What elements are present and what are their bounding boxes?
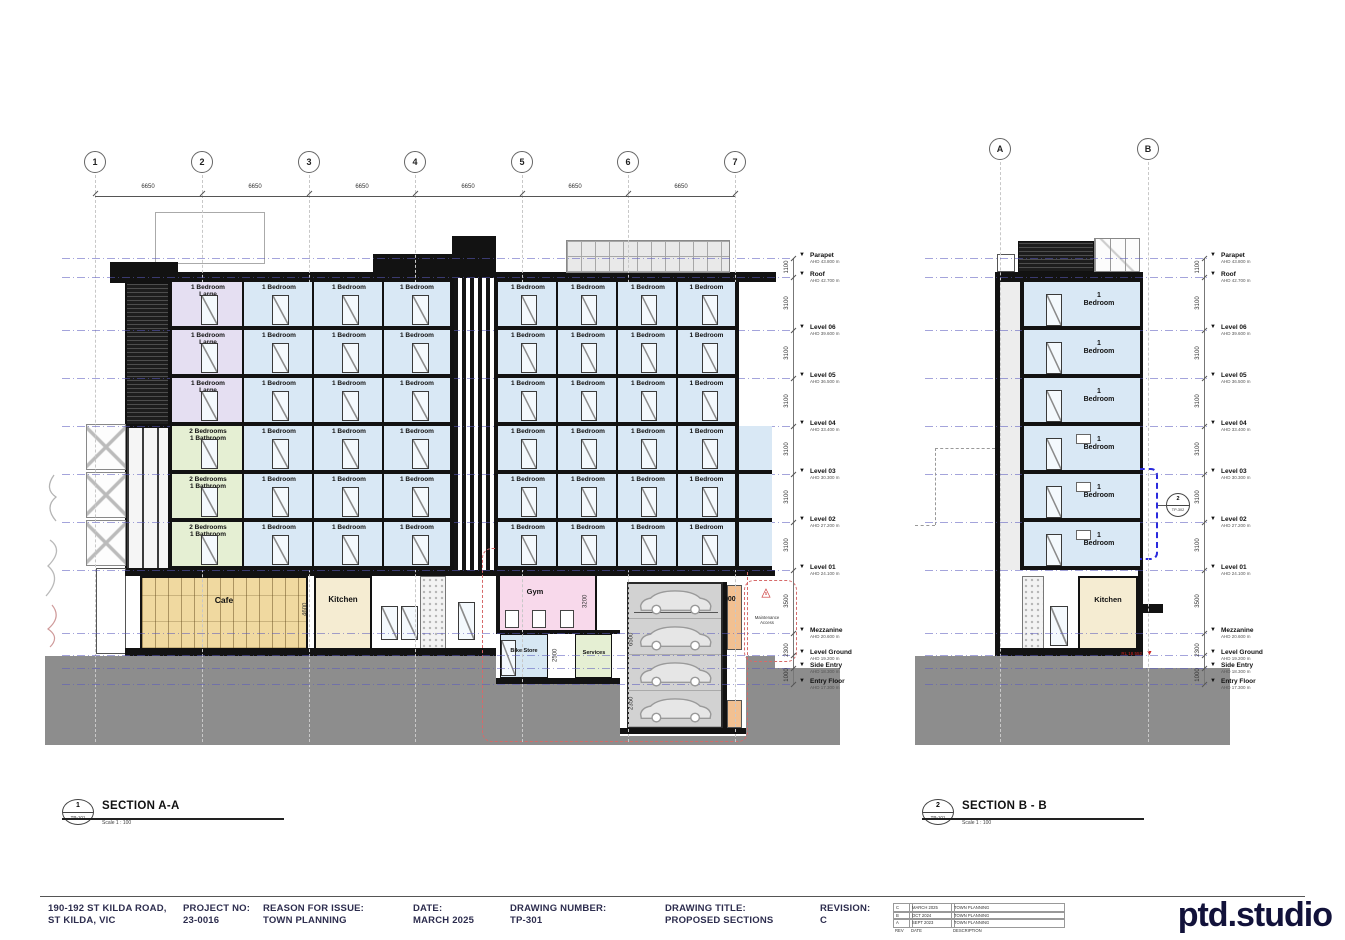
level-marker-icon: ▼ bbox=[1210, 252, 1216, 258]
room-door bbox=[702, 535, 718, 565]
section-a-callout-circle: 1 TP-101 bbox=[62, 799, 94, 825]
grid-dim-1: 6650 bbox=[215, 184, 295, 190]
level-ahd: AHD 42.700 m bbox=[810, 278, 880, 283]
room-label: 1 Bedroom bbox=[384, 428, 450, 435]
cafe-label: Cafe bbox=[140, 596, 308, 605]
room-cell: 1 Bedroom bbox=[676, 282, 739, 330]
level-ahd: AHD 19.200 m bbox=[1221, 656, 1291, 661]
room-cell: 1 Bedroom Large bbox=[170, 330, 244, 378]
level-marker-icon: ▼ bbox=[1210, 468, 1216, 474]
room-label: 1 Bedroom bbox=[498, 428, 558, 435]
room-door bbox=[272, 391, 289, 421]
level-name: Entry Floor bbox=[1221, 678, 1291, 685]
bike-store-label: Bike Store bbox=[500, 648, 548, 654]
room-cell: 1 Bedroom bbox=[312, 474, 384, 522]
grid-dim-2: 6650 bbox=[322, 184, 402, 190]
drawing-number-field: DRAWING NUMBER: TP-301 bbox=[510, 903, 606, 927]
vertical-dim: 3100 bbox=[784, 333, 790, 373]
room-label: 1 Bedroom bbox=[244, 524, 314, 531]
room-cell: 1 Bedroom bbox=[496, 282, 558, 330]
room-label: 1 Bedroom bbox=[244, 476, 314, 483]
room-cell: 1 Bedroom bbox=[616, 378, 678, 426]
room-label: 1 Bedroom bbox=[384, 524, 450, 531]
room-label: 1 Bedroom bbox=[498, 476, 558, 483]
room-cell: 1 Bedroom bbox=[496, 522, 558, 570]
room-door bbox=[641, 343, 657, 373]
room-cell: 1 Bedroom bbox=[242, 474, 314, 522]
level-marker-icon: ▼ bbox=[799, 662, 805, 668]
section-b-callout-number: 2 bbox=[923, 800, 953, 813]
level-marker: Level 03AHD 30.300 m bbox=[810, 468, 880, 480]
kitchen-label-b: Kitchen bbox=[1078, 596, 1138, 604]
car-icon bbox=[632, 658, 718, 688]
ground-earth-b bbox=[915, 656, 1230, 745]
room-door bbox=[412, 343, 429, 373]
room-door bbox=[201, 391, 218, 421]
balcony-panel bbox=[86, 472, 126, 518]
revision-label: REVISION: bbox=[820, 903, 870, 915]
level-line bbox=[62, 277, 795, 278]
section-a-title: SECTION A-A bbox=[102, 800, 180, 813]
level-line bbox=[925, 655, 1207, 656]
stacker-platform bbox=[629, 726, 721, 727]
level-marker: Level 04AHD 33.400 m bbox=[1221, 420, 1291, 432]
room-door bbox=[641, 535, 657, 565]
level-dim-line bbox=[1204, 258, 1205, 684]
hand-scribble bbox=[36, 470, 70, 650]
vertical-dim: 3100 bbox=[784, 525, 790, 565]
room-door bbox=[412, 439, 429, 469]
room-cell: 1 Bedroom bbox=[616, 330, 678, 378]
room-cell: 1 Bedroom bbox=[616, 522, 678, 570]
level-ahd: AHD 27.200 m bbox=[810, 523, 880, 528]
level-marker: Level 01AHD 24.100 m bbox=[810, 564, 880, 576]
vertical-dim: 3500 bbox=[784, 581, 790, 621]
level-ahd: AHD 24.100 m bbox=[810, 571, 880, 576]
grid-dim-3: 6650 bbox=[428, 184, 508, 190]
reason-field: REASON FOR ISSUE: TOWN PLANNING bbox=[263, 903, 364, 927]
room-door bbox=[641, 487, 657, 517]
room-label: 1 Bedroom bbox=[244, 284, 314, 291]
room-cell: 2 Bedrooms 1 Bathroom bbox=[170, 474, 244, 522]
room-label: 1 Bedroom bbox=[558, 380, 618, 387]
room-label: 1 Bedroom bbox=[314, 524, 384, 531]
room-cell: 1 Bedroom bbox=[312, 426, 384, 474]
lift-core bbox=[452, 236, 496, 574]
level-marker-icon: ▼ bbox=[1210, 372, 1216, 378]
level-name: Level 04 bbox=[810, 420, 880, 427]
room-label: 1 Bedroom bbox=[678, 332, 735, 339]
room-cell: 1 Bedroom bbox=[676, 426, 739, 474]
room-door bbox=[342, 439, 359, 469]
vertical-dim: 3100 bbox=[784, 283, 790, 323]
room-cell: 1 Bedroom bbox=[496, 426, 558, 474]
room-label: 1 Bedroom bbox=[618, 332, 678, 339]
drawing-number-label: DRAWING NUMBER: bbox=[510, 903, 606, 915]
car-icon bbox=[632, 694, 718, 724]
room-label: 1 Bedroom bbox=[498, 380, 558, 387]
room-label: 1 Bedroom bbox=[558, 332, 618, 339]
stacker-platform bbox=[629, 654, 721, 655]
level-name: Roof bbox=[810, 271, 880, 278]
furniture bbox=[1076, 530, 1091, 540]
rev-table-header-cell: DATE bbox=[909, 927, 953, 935]
room-cell: 1 Bedroom bbox=[1022, 522, 1140, 570]
level-ahd: AHD 33.400 m bbox=[810, 427, 880, 432]
level-line bbox=[925, 684, 1207, 685]
room-cell: 1 Bedroom bbox=[556, 474, 618, 522]
room-cell: 1 Bedroom bbox=[242, 330, 314, 378]
level-marker-icon: ▼ bbox=[799, 271, 805, 277]
room-cell: 1 Bedroom bbox=[382, 330, 454, 378]
room-door bbox=[272, 343, 289, 373]
grid-bubble-A: A bbox=[989, 138, 1011, 160]
room-label: 1 Bedroom bbox=[314, 380, 384, 387]
level-name: Level 01 bbox=[1221, 564, 1291, 571]
studio-logo: ptd.studio bbox=[1110, 896, 1332, 935]
room-label: 1 Bedroom bbox=[1062, 340, 1136, 356]
lobby-door bbox=[381, 606, 398, 640]
level-ahd: AHD 24.100 m bbox=[1221, 571, 1291, 576]
level-line bbox=[925, 633, 1207, 634]
room-door bbox=[521, 295, 537, 325]
room-door bbox=[412, 295, 429, 325]
room-label: 1 Bedroom bbox=[618, 380, 678, 387]
level-name: Level Ground bbox=[810, 649, 880, 656]
ground-step-b bbox=[1143, 656, 1230, 668]
room-label: 1 Bedroom bbox=[498, 524, 558, 531]
room-cell: 1 Bedroom bbox=[382, 522, 454, 570]
room-cell: 2 Bedrooms 1 Bathroom bbox=[170, 522, 244, 570]
room-cell: 1 Bedroom bbox=[242, 426, 314, 474]
balcony-panel bbox=[86, 520, 126, 566]
cafe-room bbox=[140, 576, 308, 650]
gym-label: Gym bbox=[500, 588, 570, 596]
room-label: 1 Bedroom bbox=[678, 284, 735, 291]
room-cell: 1 Bedroom bbox=[1022, 378, 1140, 426]
room-label: 1 Bedroom bbox=[618, 284, 678, 291]
room-label: 1 Bedroom bbox=[558, 428, 618, 435]
grid-dim-line bbox=[95, 196, 735, 197]
room-door bbox=[702, 487, 718, 517]
penthouse-outline bbox=[155, 212, 265, 264]
level-marker: MezzanineAHD 20.600 m bbox=[810, 627, 880, 639]
room-cell: 1 Bedroom bbox=[556, 282, 618, 330]
level-marker: Level 02AHD 27.200 m bbox=[810, 516, 880, 528]
room-label: 1 Bedroom bbox=[1062, 532, 1136, 548]
level-marker: Side EntryAHD 18.300 m bbox=[810, 662, 880, 674]
level-marker-icon: ▼ bbox=[1210, 564, 1216, 570]
room-cell-extension bbox=[737, 426, 772, 474]
room-label: 1 Bedroom bbox=[244, 332, 314, 339]
lift-overrun bbox=[452, 236, 496, 278]
level-name: Level 02 bbox=[1221, 516, 1291, 523]
room-cell: 1 Bedroom bbox=[1022, 474, 1140, 522]
vertical-dim: 3100 bbox=[1195, 333, 1201, 373]
room-label: 1 Bedroom bbox=[678, 380, 735, 387]
room-cell: 2 Bedrooms 1 Bathroom bbox=[170, 426, 244, 474]
room-cell: 1 Bedroom bbox=[1022, 282, 1140, 330]
project-no-value: 23-0016 bbox=[183, 915, 250, 927]
room-door bbox=[641, 391, 657, 421]
level-name: Level 01 bbox=[810, 564, 880, 571]
grid-dim-0: 6650 bbox=[108, 184, 188, 190]
grid-bubble-6: 6 bbox=[617, 151, 639, 173]
level-marker: Level 03AHD 30.300 m bbox=[1221, 468, 1291, 480]
room-door bbox=[272, 439, 289, 469]
room-label: 1 Bedroom bbox=[384, 332, 450, 339]
room-door bbox=[641, 439, 657, 469]
level-name: Level Ground bbox=[1221, 649, 1291, 656]
level-name: Level 06 bbox=[1221, 324, 1291, 331]
level-marker-icon: ▼ bbox=[799, 627, 805, 633]
level-name: Entry Floor bbox=[810, 678, 880, 685]
room-cell: 1 Bedroom bbox=[312, 282, 384, 330]
level-marker-icon: ▼ bbox=[799, 678, 805, 684]
level-ahd: AHD 43.800 m bbox=[810, 259, 880, 264]
room-label: 1 Bedroom bbox=[314, 428, 384, 435]
level-name: Level 03 bbox=[1221, 468, 1291, 475]
drawing-number-value: TP-301 bbox=[510, 915, 606, 927]
room-door bbox=[702, 391, 718, 421]
room-door bbox=[581, 535, 597, 565]
level-name: Parapet bbox=[810, 252, 880, 259]
vertical-dim: 1100 bbox=[1195, 247, 1201, 287]
level-marker: RoofAHD 42.700 m bbox=[1221, 271, 1291, 283]
kitchen-label-a: Kitchen bbox=[314, 596, 372, 605]
level-ahd: AHD 18.300 m bbox=[810, 669, 880, 674]
room-door bbox=[521, 535, 537, 565]
room-label: 1 Bedroom bbox=[384, 380, 450, 387]
level-ahd: AHD 39.600 m bbox=[810, 331, 880, 336]
level-ahd: AHD 19.200 m bbox=[810, 656, 880, 661]
room-door bbox=[272, 487, 289, 517]
drawing-title-label: DRAWING TITLE: bbox=[665, 903, 773, 915]
vertical-dim: 3100 bbox=[1195, 283, 1201, 323]
room-door bbox=[342, 391, 359, 421]
room-cell: 1 Bedroom bbox=[312, 522, 384, 570]
room-door bbox=[702, 343, 718, 373]
grid-bubble-2: 2 bbox=[191, 151, 213, 173]
level-marker-icon: ▼ bbox=[799, 372, 805, 378]
grid-bubble-4: 4 bbox=[404, 151, 426, 173]
level-name: Mezzanine bbox=[810, 627, 880, 634]
level-ahd: AHD 20.600 m bbox=[1221, 634, 1291, 639]
room-label: 1 Bedroom bbox=[558, 476, 618, 483]
room-label: 1 Bedroom bbox=[678, 524, 735, 531]
room-door bbox=[412, 391, 429, 421]
room-door bbox=[581, 391, 597, 421]
level-line bbox=[62, 655, 795, 656]
level-marker: Level 04AHD 33.400 m bbox=[810, 420, 880, 432]
room-cell: 1 Bedroom bbox=[616, 282, 678, 330]
level-marker: Level 06AHD 39.600 m bbox=[1221, 324, 1291, 336]
drawing-sheet: △ 5 Maintenance Access Cafe Kitchen 4600… bbox=[0, 0, 1345, 940]
level-ahd: AHD 39.600 m bbox=[1221, 331, 1291, 336]
lift-door bbox=[458, 602, 475, 640]
grid-dim-5: 6650 bbox=[641, 184, 721, 190]
level-ahd: AHD 30.300 m bbox=[1221, 475, 1291, 480]
level-marker-icon: ▼ bbox=[1210, 649, 1216, 655]
stacker-platform bbox=[629, 618, 721, 619]
dim-gym: 3200 bbox=[583, 581, 590, 621]
level-ahd: AHD 33.400 m bbox=[1221, 427, 1291, 432]
room-cell: 1 Bedroom bbox=[312, 378, 384, 426]
room-label: 1 Bedroom bbox=[498, 332, 558, 339]
level-marker-icon: ▼ bbox=[799, 564, 805, 570]
room-cell: 1 Bedroom Large bbox=[170, 282, 244, 330]
level-ahd: AHD 36.500 m bbox=[810, 379, 880, 384]
vertical-dim: 1100 bbox=[784, 247, 790, 287]
kitchen-room-a bbox=[314, 576, 372, 650]
b-side-canopy bbox=[1143, 604, 1163, 613]
level-ahd: AHD 20.600 m bbox=[810, 634, 880, 639]
room-cell: 1 Bedroom bbox=[312, 330, 384, 378]
rev-table-header-cell: DESCRIPTION bbox=[951, 927, 1063, 935]
room-door bbox=[521, 439, 537, 469]
level-marker: ParapetAHD 43.800 m bbox=[1221, 252, 1291, 264]
level-name: Level 04 bbox=[1221, 420, 1291, 427]
room-label: 1 Bedroom bbox=[314, 332, 384, 339]
level-line bbox=[925, 570, 1207, 571]
room-door bbox=[702, 295, 718, 325]
level-marker: Side EntryAHD 18.300 m bbox=[1221, 662, 1291, 674]
grid-line-1 bbox=[95, 175, 96, 742]
level-marker: Level 05AHD 36.500 m bbox=[810, 372, 880, 384]
room-label: 1 Bedroom bbox=[618, 428, 678, 435]
room-cell: 1 Bedroom bbox=[556, 522, 618, 570]
section-b-callout-circle: 2 TP-101 bbox=[922, 799, 954, 825]
level-line bbox=[62, 570, 795, 571]
level-name: Level 05 bbox=[810, 372, 880, 379]
roof-panels-b bbox=[1094, 238, 1140, 272]
room-door bbox=[641, 295, 657, 325]
vertical-dim: 1000 bbox=[1195, 655, 1201, 695]
roof-screen-a bbox=[566, 240, 730, 273]
section-a-title-rule bbox=[62, 818, 284, 820]
room-door bbox=[702, 439, 718, 469]
roof-screen-b bbox=[1018, 241, 1094, 272]
furniture bbox=[1076, 434, 1091, 444]
level-marker-icon: ▼ bbox=[1210, 678, 1216, 684]
grid-bubble-B: B bbox=[1137, 138, 1159, 160]
vertical-dim: 3100 bbox=[1195, 525, 1201, 565]
level-name: Side Entry bbox=[1221, 662, 1291, 669]
room-label: 1 Bedroom bbox=[1062, 484, 1136, 500]
room-cell: 1 Bedroom bbox=[616, 426, 678, 474]
level-marker-icon: ▼ bbox=[1210, 516, 1216, 522]
vertical-dim: 3100 bbox=[1195, 477, 1201, 517]
room-label: 1 Bedroom bbox=[678, 428, 735, 435]
room-door bbox=[272, 295, 289, 325]
balcony-column bbox=[96, 568, 126, 654]
room-door bbox=[1046, 486, 1062, 518]
level-line bbox=[62, 258, 795, 259]
room-cell: 1 Bedroom bbox=[382, 474, 454, 522]
date-value: MARCH 2025 bbox=[413, 915, 474, 927]
car-icon bbox=[632, 622, 718, 652]
stone-wall bbox=[420, 576, 446, 650]
address-line1: 190-192 ST KILDA ROAD, bbox=[48, 903, 167, 915]
room-cell: 1 Bedroom bbox=[556, 330, 618, 378]
room-label: 1 Bedroom bbox=[244, 380, 314, 387]
level-marker-icon: ▼ bbox=[1210, 627, 1216, 633]
room-cell: 1 Bedroom bbox=[556, 378, 618, 426]
room-door bbox=[412, 487, 429, 517]
level-marker: MezzanineAHD 20.600 m bbox=[1221, 627, 1291, 639]
level-marker-icon: ▼ bbox=[1210, 324, 1216, 330]
room-cell: 1 Bedroom bbox=[676, 330, 739, 378]
level-marker: Level GroundAHD 19.200 m bbox=[810, 649, 880, 661]
left-facade-light bbox=[125, 426, 170, 570]
level-line bbox=[925, 277, 1207, 278]
room-cell-extension bbox=[737, 522, 772, 570]
vertical-dim: 3100 bbox=[1195, 429, 1201, 469]
furniture bbox=[1076, 482, 1091, 492]
room-door bbox=[342, 295, 359, 325]
room-door bbox=[342, 343, 359, 373]
level-ahd: AHD 27.200 m bbox=[1221, 523, 1291, 528]
level-name: Side Entry bbox=[810, 662, 880, 669]
room-door bbox=[581, 439, 597, 469]
room-door bbox=[521, 487, 537, 517]
level-marker: Level GroundAHD 19.200 m bbox=[1221, 649, 1291, 661]
room-door bbox=[342, 487, 359, 517]
neighbor-outline bbox=[915, 525, 935, 526]
revision-value: C bbox=[820, 915, 870, 927]
room-label: 1 Bedroom bbox=[558, 524, 618, 531]
room-door bbox=[201, 343, 218, 373]
room-door bbox=[1046, 390, 1062, 422]
room-label: 1 Bedroom bbox=[1062, 436, 1136, 452]
room-cell: 1 Bedroom bbox=[496, 378, 558, 426]
room-cell: 1 Bedroom bbox=[242, 378, 314, 426]
level-marker-icon: ▼ bbox=[1210, 271, 1216, 277]
b-entry-door bbox=[1050, 606, 1068, 646]
room-door bbox=[581, 343, 597, 373]
room-label: 1 Bedroom bbox=[618, 524, 678, 531]
revision-field: REVISION: C bbox=[820, 903, 870, 927]
room-label: 1 Bedroom bbox=[314, 284, 384, 291]
room-cell: 1 Bedroom bbox=[676, 474, 739, 522]
roof-plant-box bbox=[373, 254, 452, 273]
reason-label: REASON FOR ISSUE: bbox=[263, 903, 364, 915]
grid-bubble-7: 7 bbox=[724, 151, 746, 173]
level-marker-icon: ▼ bbox=[799, 324, 805, 330]
room-label: 1 Bedroom bbox=[498, 284, 558, 291]
vertical-dim: 3100 bbox=[784, 381, 790, 421]
room-cell: 1 Bedroom bbox=[242, 282, 314, 330]
room-cell: 1 Bedroom bbox=[1022, 330, 1140, 378]
level-name: Level 06 bbox=[810, 324, 880, 331]
room-cell: 1 Bedroom bbox=[1022, 426, 1140, 474]
level-marker: ParapetAHD 43.800 m bbox=[810, 252, 880, 264]
neighbor-outline bbox=[935, 448, 995, 525]
room-door bbox=[201, 487, 218, 517]
grid-bubble-1: 1 bbox=[84, 151, 106, 173]
room-cell: 1 Bedroom bbox=[616, 474, 678, 522]
car-icon bbox=[632, 586, 718, 616]
room-door bbox=[1046, 438, 1062, 470]
room-cell: 1 Bedroom bbox=[556, 426, 618, 474]
room-label: 1 Bedroom bbox=[678, 476, 735, 483]
room-label: 1 Bedroom bbox=[1062, 292, 1136, 308]
reason-value: TOWN PLANNING bbox=[263, 915, 364, 927]
room-door bbox=[581, 487, 597, 517]
section-a-scale: Scale 1 : 100 bbox=[102, 821, 131, 827]
level-dim-line bbox=[793, 258, 794, 684]
level-marker: Level 02AHD 27.200 m bbox=[1221, 516, 1291, 528]
